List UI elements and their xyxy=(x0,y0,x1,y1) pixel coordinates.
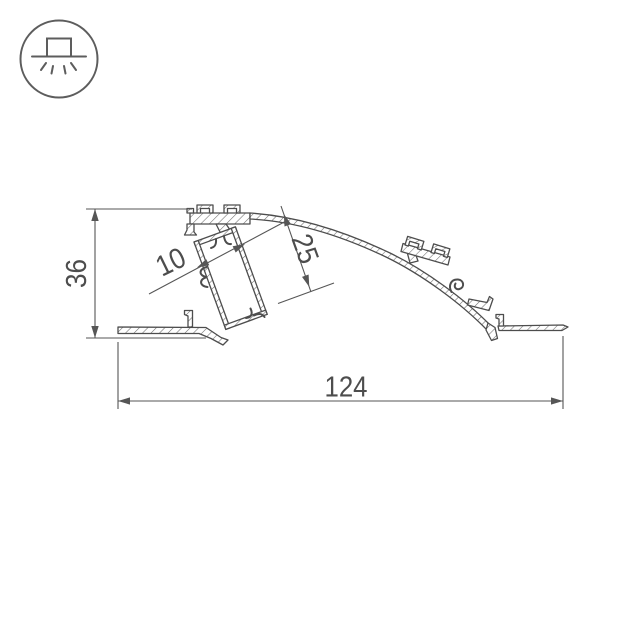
dimension-channel-depth: 25 xyxy=(278,206,334,304)
dim-width-label: 124 xyxy=(325,372,368,404)
arrowhead-right xyxy=(551,397,563,404)
right-flange-tab xyxy=(496,315,504,327)
arrowhead-up xyxy=(91,209,98,221)
dim-slot-label: 10 xyxy=(151,242,191,283)
icon-circle xyxy=(21,21,98,98)
rail-clip-1 xyxy=(197,205,213,213)
rail-clip-2 xyxy=(224,205,240,213)
channel-bottom-wall xyxy=(224,310,267,329)
extension-line xyxy=(278,283,334,304)
wing-hook xyxy=(450,279,463,292)
right-flange xyxy=(498,325,568,331)
left-flange xyxy=(118,327,228,345)
curved-wing xyxy=(250,213,492,331)
dimension-slot-width: 10 xyxy=(149,220,288,294)
left-flange-tab xyxy=(185,311,193,328)
dim-depth-label: 25 xyxy=(285,230,325,268)
arrowhead-bottom xyxy=(302,275,309,288)
fixture-box xyxy=(47,39,71,57)
dim-height-label: 36 xyxy=(61,259,93,288)
arrowhead-left xyxy=(118,397,130,404)
drawing-canvas: 36 124 10 25 xyxy=(0,0,623,623)
rail-left-leg xyxy=(185,224,197,235)
arrowhead-down xyxy=(91,326,98,338)
light-rays-icon xyxy=(41,63,76,74)
wing-foot xyxy=(486,323,498,341)
top-rail xyxy=(190,213,250,224)
technical-drawing: 36 124 10 25 xyxy=(0,0,623,623)
dimension-width: 124 xyxy=(118,336,563,409)
recessed-ceiling-light-icon xyxy=(21,21,98,98)
